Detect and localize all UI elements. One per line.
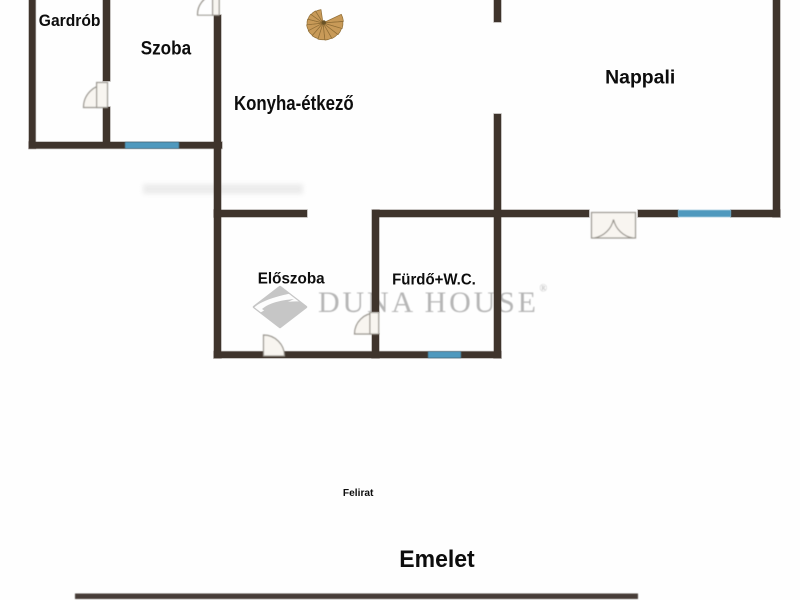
svg-text:Szoba: Szoba bbox=[141, 39, 192, 60]
svg-text:Emelet: Emelet bbox=[399, 547, 474, 573]
svg-text:Felirat: Felirat bbox=[343, 488, 374, 499]
svg-text:DUNA HOUSE: DUNA HOUSE bbox=[318, 286, 536, 319]
svg-text:Fürdő+W.C.: Fürdő+W.C. bbox=[392, 271, 476, 288]
svg-text:Nappali: Nappali bbox=[605, 67, 675, 89]
svg-text:Gardrób: Gardrób bbox=[39, 11, 101, 30]
svg-text:Előszoba: Előszoba bbox=[258, 271, 325, 288]
svg-text:Konyha-étkező: Konyha-étkező bbox=[234, 93, 354, 115]
svg-text:®: ® bbox=[540, 284, 548, 295]
